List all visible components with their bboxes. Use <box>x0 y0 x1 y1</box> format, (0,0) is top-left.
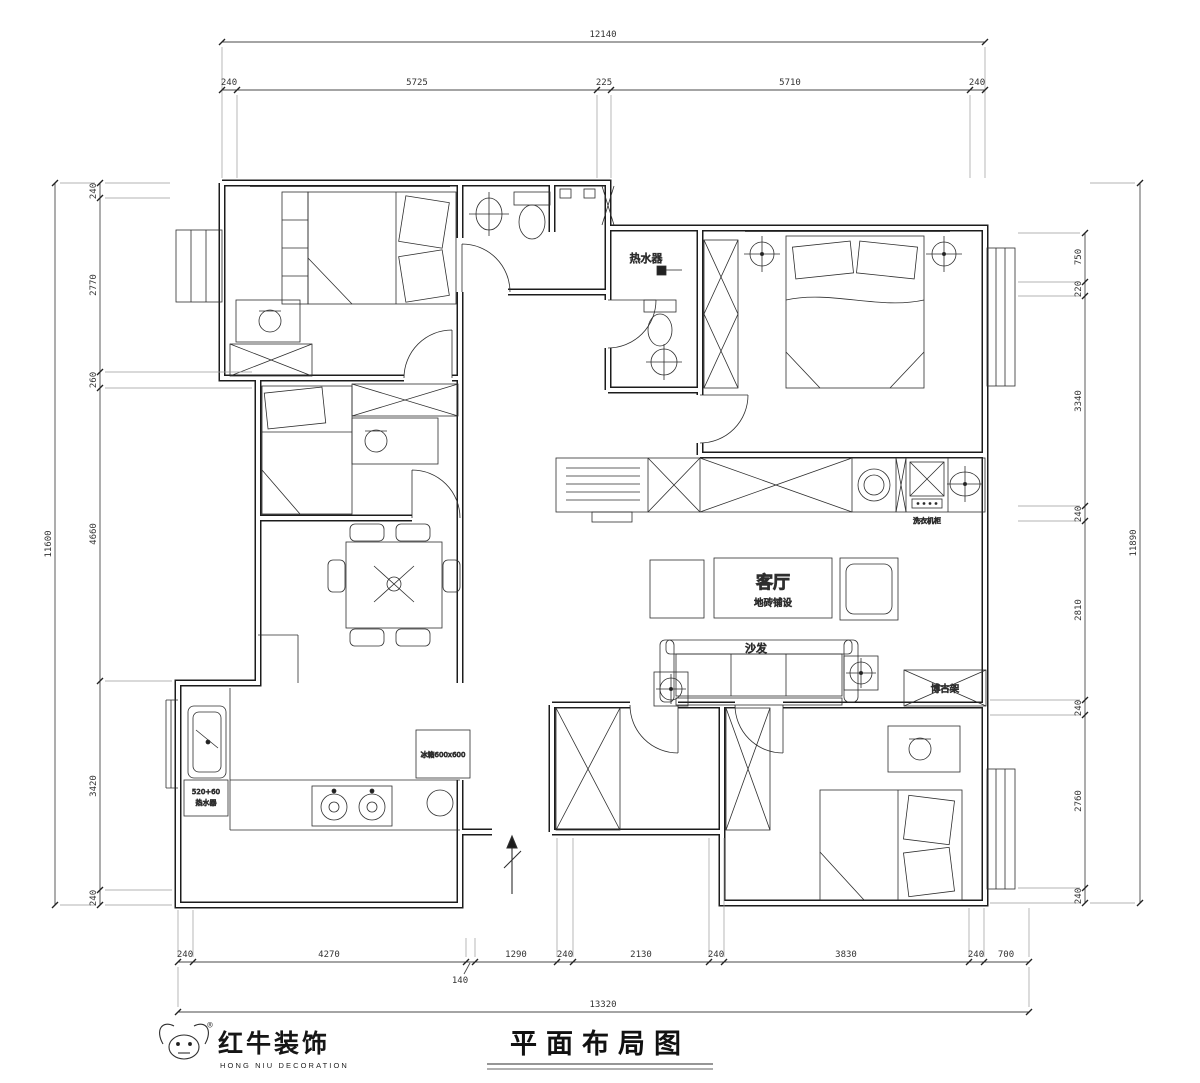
pillow <box>903 795 954 844</box>
table-decor <box>374 566 414 602</box>
dim-right-3: 240 <box>1074 506 1084 522</box>
sink <box>646 344 682 380</box>
chair <box>350 524 384 541</box>
chair <box>350 629 384 646</box>
bull-icon <box>160 1024 209 1059</box>
fridge: 冰箱600x600 <box>416 730 470 778</box>
chair <box>396 629 430 646</box>
dim-right-1: 220 <box>1074 281 1084 297</box>
logo-subtitle: HONG NIU DECORATION <box>220 1061 349 1070</box>
dimension-right: 750 220 3340 240 2810 240 2760 240 11890 <box>990 180 1143 906</box>
pillow <box>264 387 325 429</box>
dim-right-total: 11890 <box>1129 529 1139 556</box>
pillow <box>792 241 853 279</box>
cabinet-x <box>648 458 700 512</box>
basin-round <box>427 790 453 816</box>
cabinet-tab <box>592 512 632 522</box>
registered-mark: ® <box>207 1021 213 1031</box>
bedroom-1 <box>230 192 456 376</box>
dim-top-1: 5725 <box>406 78 428 88</box>
wardrobe <box>230 344 312 376</box>
dim-bottom-1: 4270 <box>318 950 340 960</box>
door-bath1 <box>462 244 510 292</box>
pillow <box>903 847 954 896</box>
side-table-lamp <box>844 656 878 690</box>
kitchen-heater-box: 520+60 热水器 <box>184 780 228 816</box>
bed <box>308 192 456 304</box>
dim-right-4: 2810 <box>1074 599 1084 621</box>
dim-top-3: 5710 <box>779 78 801 88</box>
door-corridor <box>630 705 678 753</box>
living-room-label: 客厅 <box>755 572 790 593</box>
chair <box>328 560 345 592</box>
bay-window-right-upper <box>987 248 1015 386</box>
bed <box>262 386 352 514</box>
side-table-lamp <box>654 672 688 706</box>
dim-bottom-7: 3830 <box>835 950 857 960</box>
logo-name: 红牛装饰 <box>218 1029 330 1058</box>
fixture <box>584 189 595 198</box>
dim-right-0: 750 <box>1074 249 1084 265</box>
dimension-top: 12140 240 5725 225 5710 240 <box>219 30 988 178</box>
bedside-lamp <box>744 236 780 272</box>
cabinet-x <box>896 458 906 512</box>
dim-top-4: 240 <box>969 78 985 88</box>
dim-left-1: 2770 <box>89 274 99 296</box>
pillow <box>399 250 450 302</box>
chair <box>396 524 430 541</box>
closet-x <box>726 708 770 830</box>
living-label-box: 客厅 地砖铺设 <box>714 558 832 618</box>
bedroom-3 <box>820 726 962 900</box>
laundry-cabinet <box>910 462 944 508</box>
pillow <box>399 196 450 248</box>
dim-right-6: 2760 <box>1074 790 1084 812</box>
sofa: 沙发 <box>660 640 858 705</box>
door-master <box>700 395 748 443</box>
dim-bottom-total: 13320 <box>589 1000 616 1010</box>
bay-window-left <box>176 230 222 302</box>
water-heater-label: 热水器 <box>630 252 663 265</box>
bedroom-2 <box>262 384 458 514</box>
washing-machine <box>858 469 890 501</box>
kitchen-heater-line2: 热水器 <box>196 798 217 807</box>
floor-plan-page: 热水器 <box>0 0 1200 1083</box>
sink <box>469 192 509 236</box>
kitchen-sink <box>188 706 226 778</box>
logo: ® 红牛装饰 HONG NIU DECORATION <box>160 1021 349 1070</box>
drawing-title: 平面布局图 <box>510 1029 690 1059</box>
master-bedroom <box>704 236 962 388</box>
desk <box>888 726 960 772</box>
wardrobe <box>352 384 458 416</box>
stove <box>312 786 392 826</box>
sofa-label: 沙发 <box>745 641 767 655</box>
dim-bottom-0: 240 <box>177 950 193 960</box>
fixture <box>560 189 571 198</box>
entry-arrowhead <box>507 836 517 848</box>
dining-table <box>346 542 442 628</box>
dim-left-5: 240 <box>89 890 99 906</box>
curio-shelf-label: 博古架 <box>931 683 960 695</box>
title-block: ® 红牛装饰 HONG NIU DECORATION 平面布局图 <box>160 1021 713 1070</box>
dim-left-2: 260 <box>89 372 99 388</box>
bay-window-right-lower <box>987 769 1015 889</box>
toilet <box>644 300 676 346</box>
chair <box>259 310 281 332</box>
door-bedroom3 <box>735 705 783 753</box>
dim-top-0: 240 <box>221 78 237 88</box>
end-table <box>650 560 704 618</box>
closets <box>556 708 770 830</box>
chair <box>365 430 387 452</box>
dim-bottom-5: 2130 <box>630 950 652 960</box>
entry <box>504 836 521 894</box>
bedside-lamp <box>926 236 962 272</box>
bathroom-1 <box>469 189 595 239</box>
door-bedroom1 <box>404 330 452 378</box>
water-heater-icon <box>657 266 666 275</box>
radiator-lines <box>566 468 640 500</box>
chair <box>909 738 931 760</box>
walls <box>178 183 985 905</box>
dim-right-7: 240 <box>1074 888 1084 904</box>
toilet <box>514 192 550 239</box>
dim-bottom-2: 140 <box>452 976 468 986</box>
pillow <box>856 241 917 279</box>
cabinet-x <box>700 458 852 512</box>
bathroom-2: 热水器 <box>630 252 683 380</box>
basin <box>947 466 983 502</box>
armchair <box>840 558 898 620</box>
door-bedroom2 <box>412 470 460 518</box>
closet-x <box>556 708 620 830</box>
living-room-finish: 地砖铺设 <box>754 597 793 609</box>
desk <box>236 300 300 342</box>
dim-right-2: 3340 <box>1074 390 1084 412</box>
dim-right-5: 240 <box>1074 700 1084 716</box>
dim-top-2: 225 <box>596 78 612 88</box>
living-room: 客厅 地砖铺设 沙发 博古架 <box>650 558 986 706</box>
kitchen-heater-line1: 520+60 <box>192 788 220 796</box>
dim-left-0: 240 <box>89 183 99 199</box>
dim-bottom-8: 240 <box>968 950 984 960</box>
kitchen: 520+60 热水器 冰箱600x600 <box>184 688 470 830</box>
dim-top-total: 12140 <box>589 30 616 40</box>
bed <box>820 790 962 900</box>
dim-left-4: 3420 <box>89 775 99 797</box>
dim-bottom-6: 240 <box>708 950 724 960</box>
dim-bottom-3: 1290 <box>505 950 527 960</box>
dimension-bottom: 240 4270 140 1290 240 2130 240 3830 240 … <box>175 838 1032 1015</box>
fridge-label: 冰箱600x600 <box>421 750 466 759</box>
dim-left-total: 11600 <box>44 530 54 557</box>
floor-plan-canvas: 热水器 <box>0 0 1200 1083</box>
corridor-cabinets: 洗衣机柜 <box>556 458 985 525</box>
dim-left-3: 4660 <box>89 523 99 545</box>
curio-shelf: 博古架 <box>904 670 986 706</box>
laundry-label: 洗衣机柜 <box>913 516 941 525</box>
bed <box>786 236 924 388</box>
dining-area <box>258 524 460 683</box>
dim-bottom-9: 700 <box>998 950 1014 960</box>
dim-bottom-4: 240 <box>557 950 573 960</box>
wardrobe <box>704 240 738 388</box>
